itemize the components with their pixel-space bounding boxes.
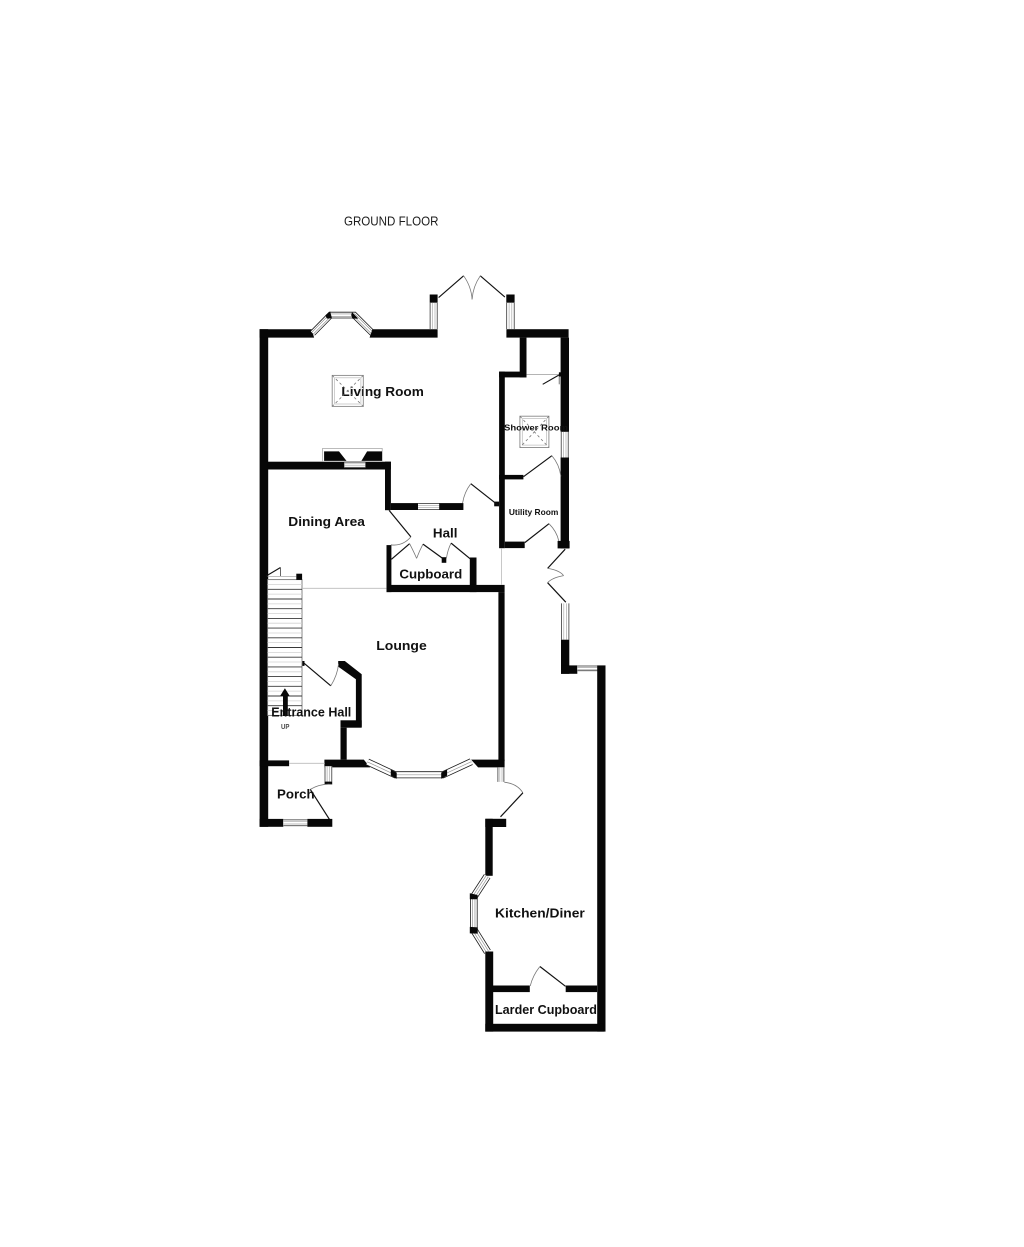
svg-text:GROUND FLOOR: GROUND FLOOR [344, 214, 439, 229]
svg-text:Dining Area: Dining Area [288, 514, 365, 529]
svg-text:Hall: Hall [433, 526, 458, 541]
svg-text:Utility Room: Utility Room [509, 507, 559, 517]
svg-text:Lounge: Lounge [376, 638, 427, 653]
svg-text:Cupboard: Cupboard [399, 567, 462, 582]
svg-text:Larder Cupboard: Larder Cupboard [495, 1002, 597, 1017]
svg-text:Living Room: Living Room [341, 384, 423, 399]
svg-text:Porch: Porch [277, 787, 315, 802]
svg-text:Shower Room: Shower Room [504, 422, 568, 432]
svg-text:UP: UP [281, 724, 290, 731]
svg-text:Entrance Hall: Entrance Hall [271, 705, 351, 720]
svg-text:Kitchen/Diner: Kitchen/Diner [495, 905, 585, 920]
